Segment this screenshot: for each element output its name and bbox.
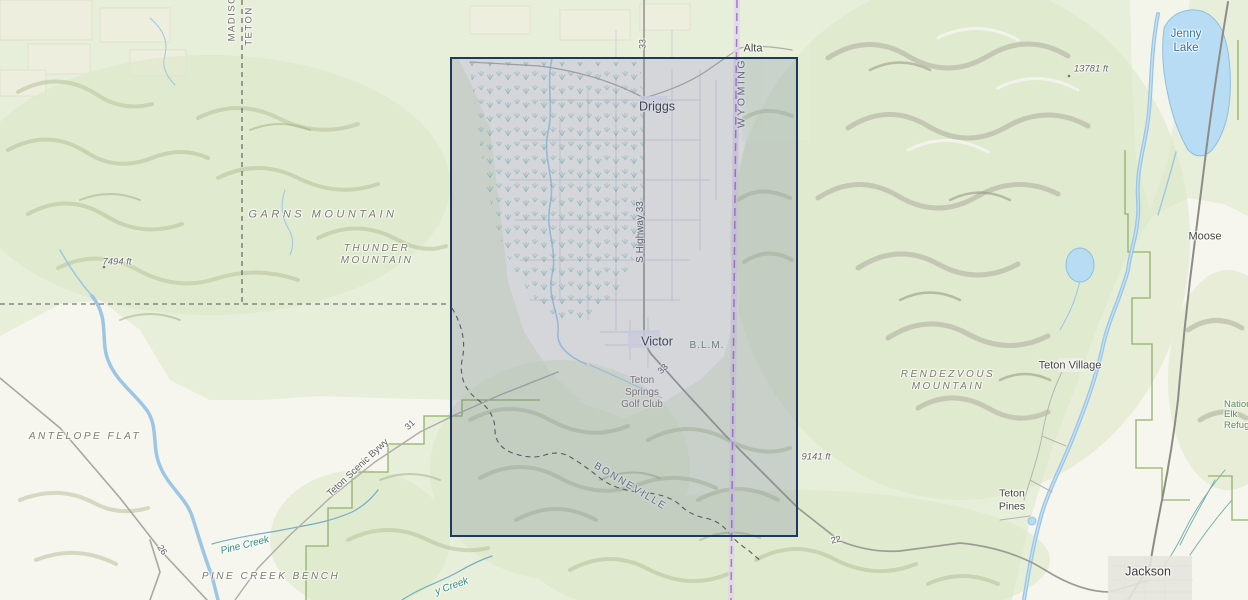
pond-teton-pines [1028,517,1036,525]
map-canvas[interactable]: MADISON TETON Alta Driggs WYOMING Jenny … [0,0,1248,600]
phelps-lake [1066,248,1094,282]
map-graphics [0,0,1248,600]
